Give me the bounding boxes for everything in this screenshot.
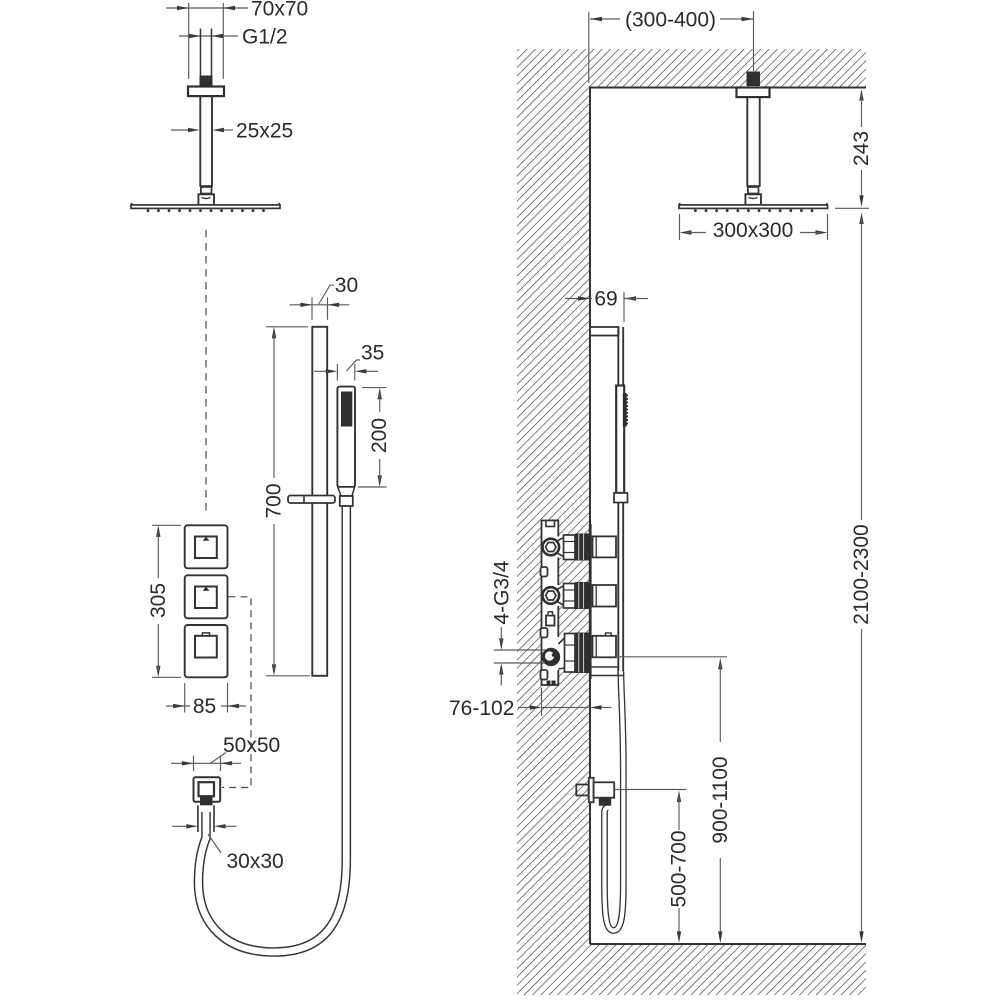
svg-text:50x50: 50x50	[223, 734, 280, 757]
svg-text:25x25: 25x25	[236, 120, 293, 143]
svg-text:69: 69	[594, 288, 617, 311]
svg-text:305: 305	[147, 583, 170, 618]
svg-text:300x300: 300x300	[713, 219, 794, 242]
svg-text:(300-400): (300-400)	[625, 9, 716, 32]
svg-text:700: 700	[263, 483, 286, 518]
svg-text:85: 85	[193, 695, 216, 718]
svg-text:500-700: 500-700	[668, 830, 691, 907]
svg-text:76-102: 76-102	[449, 697, 514, 720]
svg-text:G1/2: G1/2	[242, 26, 288, 49]
svg-text:900-1100: 900-1100	[709, 756, 732, 843]
svg-text:2100-2300: 2100-2300	[850, 524, 873, 624]
svg-text:200: 200	[368, 418, 391, 453]
svg-text:4-G3/4: 4-G3/4	[491, 560, 514, 625]
svg-text:35: 35	[361, 342, 384, 365]
svg-text:30x30: 30x30	[227, 850, 284, 873]
svg-text:70x70: 70x70	[251, 0, 308, 21]
svg-text:243: 243	[850, 131, 873, 166]
svg-text:30: 30	[335, 274, 358, 297]
